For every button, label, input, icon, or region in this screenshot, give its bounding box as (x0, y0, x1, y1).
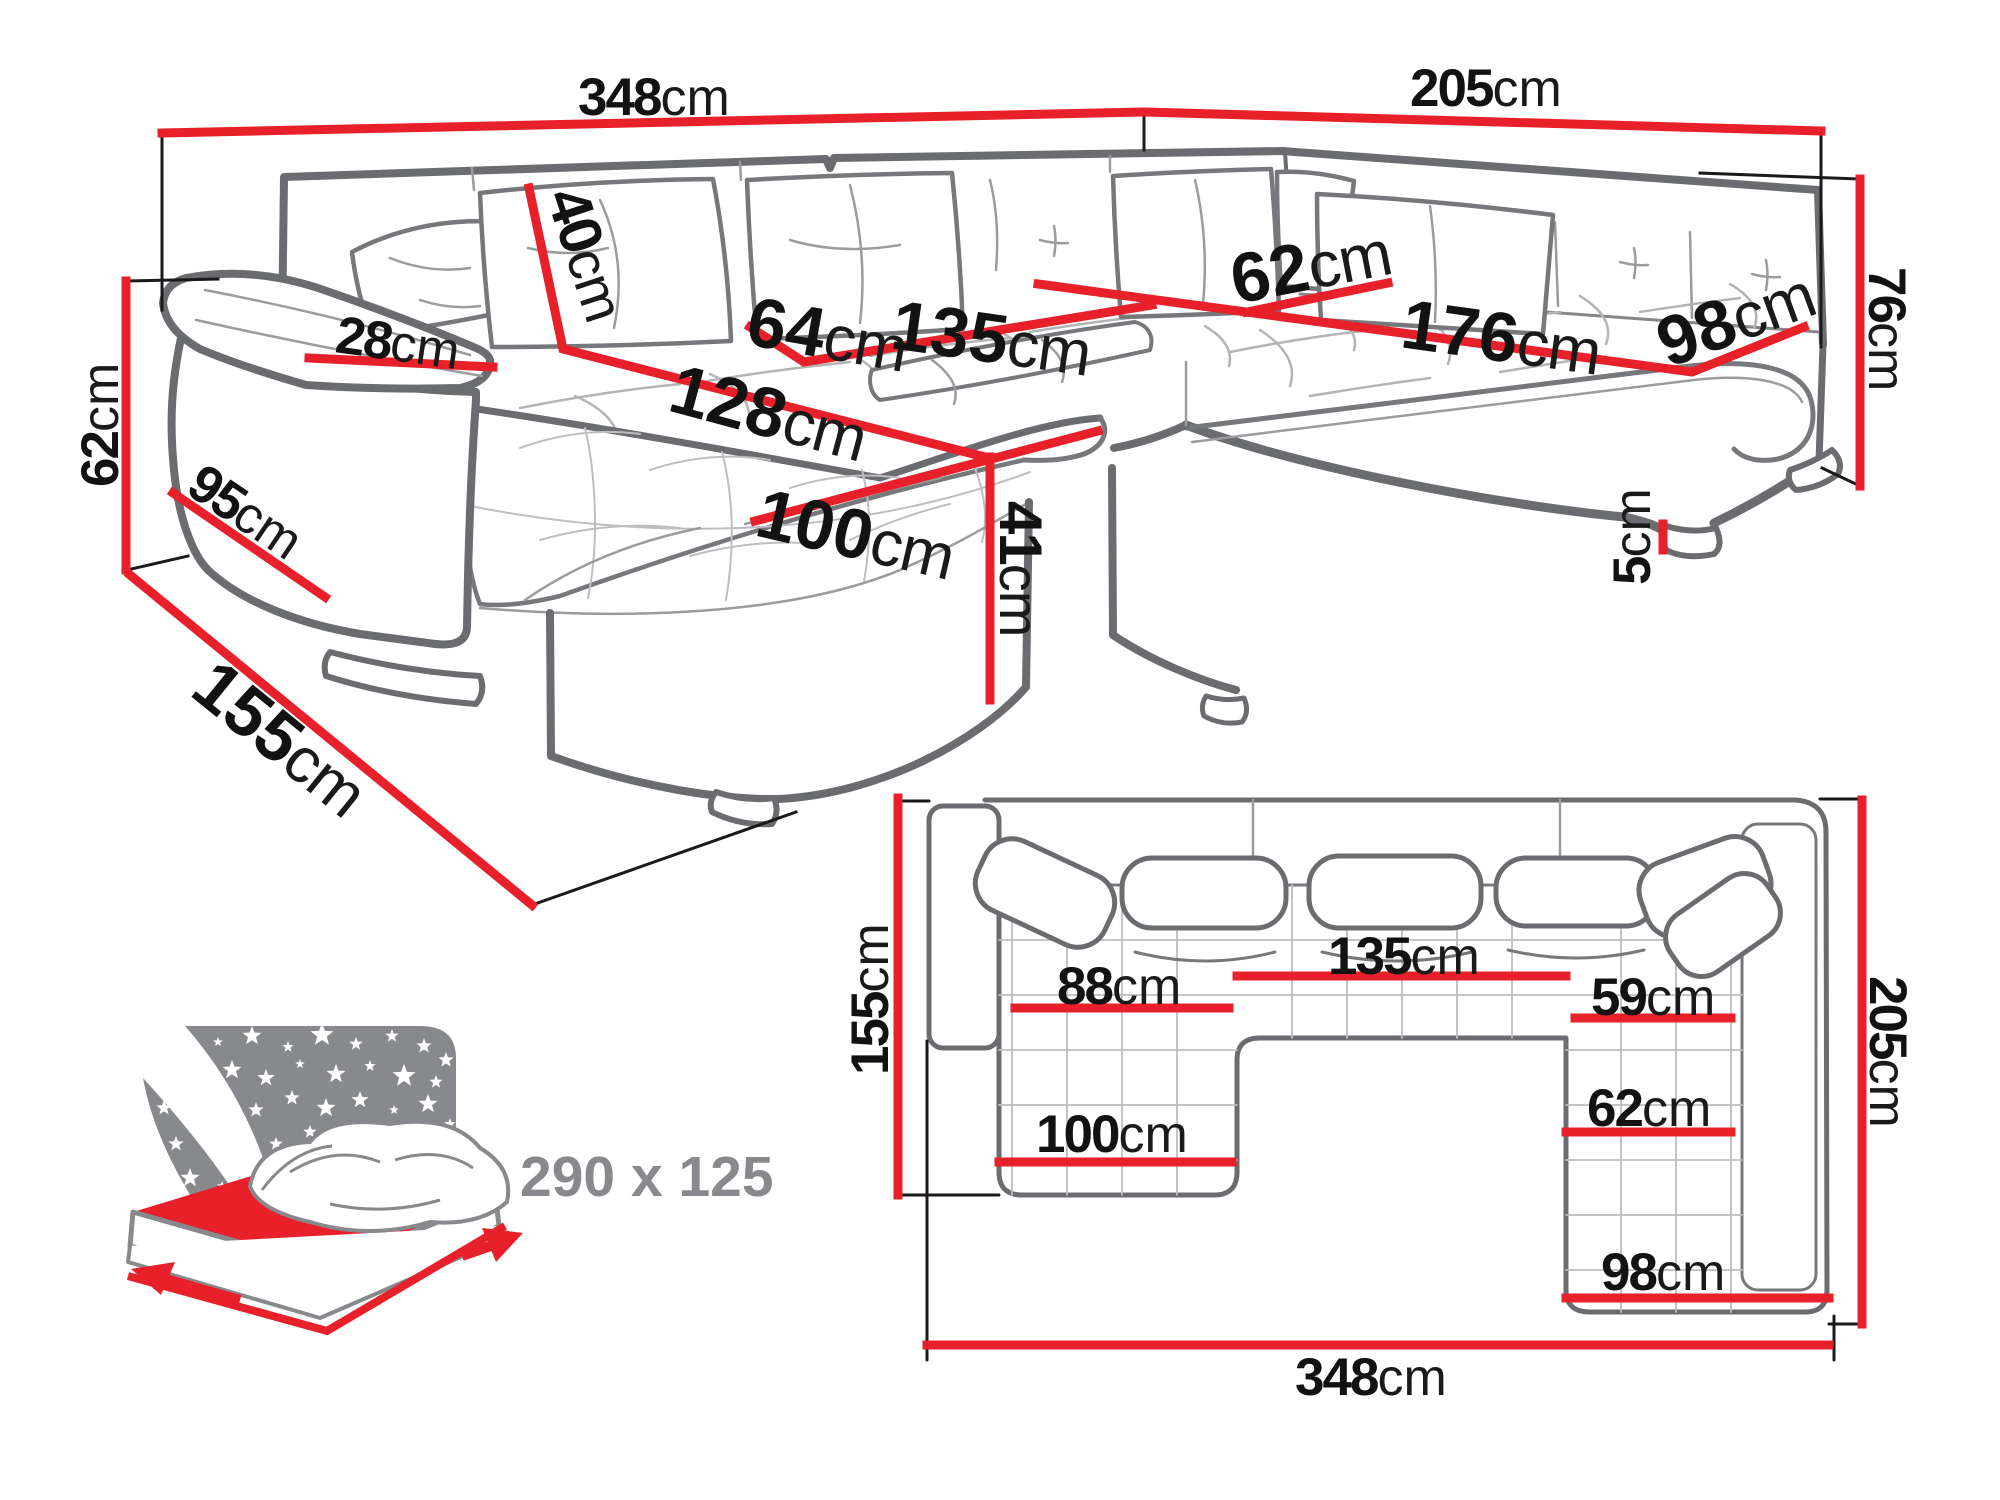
svg-text:135cm: 135cm (1328, 927, 1480, 986)
svg-text:205cm: 205cm (1858, 976, 1917, 1128)
svg-text:205cm: 205cm (1410, 59, 1562, 118)
svg-text:5cm: 5cm (1603, 488, 1662, 585)
svg-text:155cm: 155cm (841, 923, 900, 1075)
svg-text:348cm: 348cm (578, 68, 730, 127)
svg-text:62cm: 62cm (71, 363, 130, 487)
svg-text:62cm: 62cm (1587, 1079, 1711, 1138)
svg-text:348cm: 348cm (1295, 1348, 1447, 1407)
svg-text:100cm: 100cm (1036, 1105, 1188, 1164)
svg-text:59cm: 59cm (1591, 968, 1715, 1027)
svg-text:88cm: 88cm (1057, 957, 1181, 1016)
svg-text:98cm: 98cm (1601, 1243, 1725, 1302)
svg-text:290 x 125: 290 x 125 (520, 1145, 774, 1209)
svg-text:76cm: 76cm (1857, 267, 1916, 391)
svg-text:41cm: 41cm (987, 501, 1054, 636)
